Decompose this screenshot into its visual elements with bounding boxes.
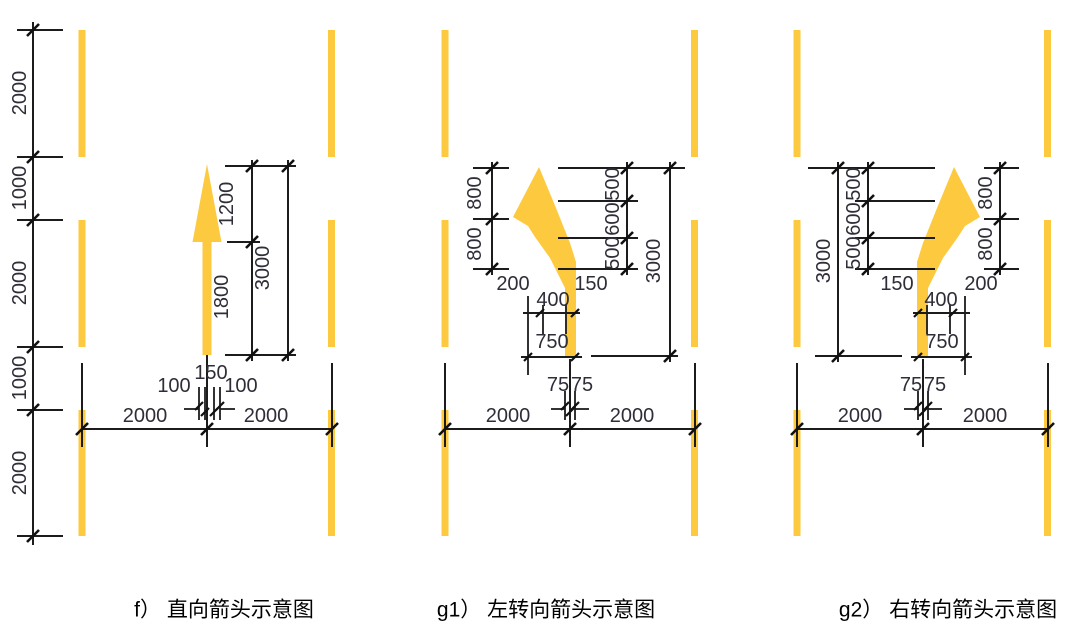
chain-dim-1000a: 1000: [9, 166, 31, 211]
dim-800-bottom: 800: [975, 227, 997, 260]
dim-100-right: 100: [224, 375, 257, 397]
dim-500-top: 500: [602, 167, 624, 200]
road-marking-figure: 2000 1000 2000 1000 2000: [0, 0, 1080, 637]
dim-1200: 1200: [216, 182, 238, 227]
panel-g2: 3000 500 600 500 800 800 150 200 400 750…: [791, 30, 1054, 536]
dim-150: 150: [574, 273, 607, 295]
dim-100-left: 100: [157, 375, 190, 397]
dim-500-top: 500: [843, 167, 865, 200]
dim-150: 150: [194, 362, 227, 384]
panel-f: 1200 3000 1800 150 100 100 2000 2000: [76, 30, 338, 536]
dim-2000-left: 2000: [838, 405, 883, 427]
dim-2000-right: 2000: [244, 405, 289, 427]
panel-g1: 800 800 500 600 500 3000 200 150 400 750…: [439, 30, 701, 536]
dim-400: 400: [536, 289, 569, 311]
dim-200: 200: [496, 273, 529, 295]
dim-75-left: 75: [547, 374, 569, 396]
chain-dim-2000b: 2000: [9, 261, 31, 306]
dim-400: 400: [924, 289, 957, 311]
dim-200: 200: [964, 273, 997, 295]
dim-150: 150: [880, 273, 913, 295]
dim-3000: 3000: [643, 239, 665, 284]
panel-g1-dimension-labels: 800 800 500 600 500 3000 200 150 400 750…: [464, 167, 665, 427]
chain-dim-2000a: 2000: [9, 71, 31, 116]
dim-3000: 3000: [252, 246, 274, 291]
dim-1800: 1800: [211, 275, 233, 320]
caption-g2: g2） 右转向箭头示意图: [839, 599, 1057, 622]
dim-600: 600: [843, 202, 865, 235]
caption-f: f） 直向箭头示意图: [134, 599, 314, 622]
caption-g1: g1） 左转向箭头示意图: [437, 599, 655, 622]
dim-2000-left: 2000: [123, 405, 168, 427]
dim-75-right: 75: [924, 374, 946, 396]
dim-75-right: 75: [571, 374, 593, 396]
dim-2000-right: 2000: [963, 405, 1008, 427]
dim-800-top: 800: [464, 176, 486, 209]
left-dimension-chain: 2000 1000 2000 1000 2000: [9, 22, 63, 545]
dim-2000-left: 2000: [486, 405, 531, 427]
dim-750: 750: [535, 331, 568, 353]
dim-750: 750: [925, 331, 958, 353]
chain-dim-2000c: 2000: [9, 451, 31, 496]
chain-dim-1000b: 1000: [9, 356, 31, 401]
diagram-canvas: 2000 1000 2000 1000 2000: [0, 0, 1080, 637]
dim-600: 600: [602, 202, 624, 235]
dim-800-top: 800: [975, 176, 997, 209]
captions: f） 直向箭头示意图 g1） 左转向箭头示意图 g2） 右转向箭头示意图: [134, 599, 1057, 622]
dim-500-bottom: 500: [602, 236, 624, 269]
dim-500-bottom: 500: [843, 236, 865, 269]
panel-g2-dimension-labels: 3000 500 600 500 800 800 150 200 400 750…: [813, 167, 1007, 427]
dim-800-bottom: 800: [464, 227, 486, 260]
dim-3000: 3000: [813, 239, 835, 284]
dim-75-left: 75: [900, 374, 922, 396]
dim-2000-right: 2000: [610, 405, 655, 427]
